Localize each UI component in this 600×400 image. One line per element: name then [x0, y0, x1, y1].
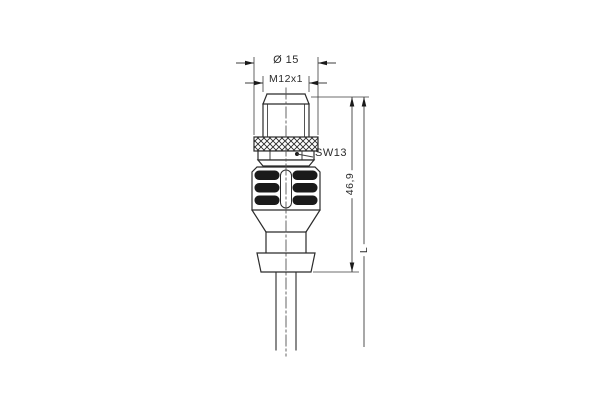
dim-thread-label: M12x1	[269, 74, 303, 85]
dim-cable-length-label: L	[359, 244, 370, 256]
dim-body-length-label: 46,9	[345, 170, 356, 198]
dim-diameter-label: Ø 15	[273, 55, 299, 66]
technical-drawing-canvas: Ø 15 M12x1 SW13 46,9 L	[0, 0, 600, 400]
connector-body	[252, 88, 320, 356]
dim-wrench-size-label: SW13	[315, 148, 347, 159]
dim-cable-length	[362, 97, 367, 347]
connector-drawing-svg	[0, 0, 600, 400]
